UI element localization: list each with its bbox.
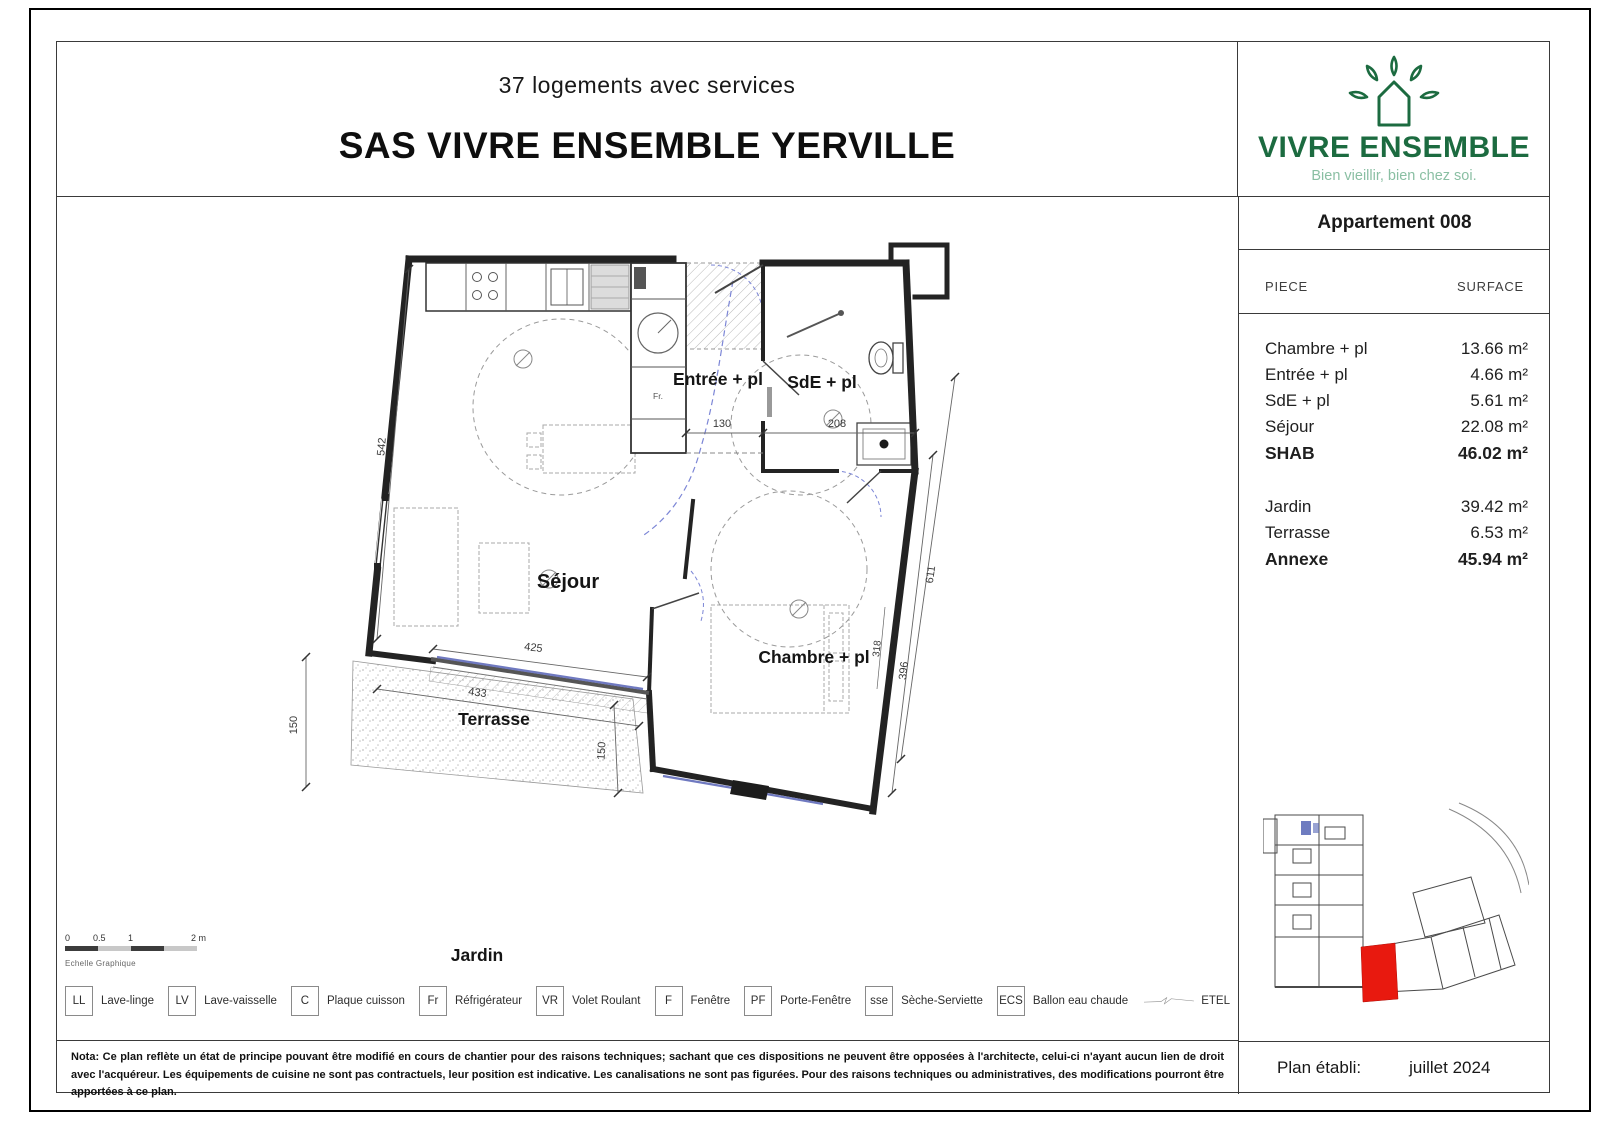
- room-label-chambre: Chambre + pl: [758, 647, 869, 667]
- legend-box-pf: PF: [744, 986, 772, 1016]
- room-label-sde: SdE + pl: [787, 372, 857, 392]
- logo: VIVRE ENSEMBLE Bien vieillir, bien chez …: [1238, 42, 1550, 197]
- table-row: Chambre + pl13.66 m²: [1265, 336, 1528, 362]
- toilet-icon: [869, 342, 893, 374]
- scale-tick-1: 1: [128, 933, 133, 943]
- project-title: SAS VIVRE ENSEMBLE YERVILLE: [339, 125, 956, 167]
- legend-box-ecs: ECS: [997, 986, 1025, 1016]
- room-label-entree: Entrée + pl: [673, 369, 763, 389]
- table-row: Séjour22.08 m²: [1265, 414, 1528, 440]
- dim-425: 425: [524, 641, 544, 655]
- room-label-jardin: Jardin: [451, 945, 504, 965]
- apartment-panel: Appartement 008 PIECE SURFACE Chambre + …: [1238, 197, 1550, 1094]
- surface-table: Chambre + pl13.66 m² Entrée + pl4.66 m² …: [1239, 314, 1550, 572]
- table-row-annexe: Annexe45.94 m²: [1265, 546, 1528, 572]
- plan-established-label: Plan établi:: [1277, 1058, 1361, 1078]
- apartment-title: Appartement 008: [1239, 197, 1550, 250]
- dim-150-right: 150: [596, 741, 609, 760]
- closet-column: [631, 263, 686, 453]
- nota-text: Nota: Ce plan reflète un état de princip…: [57, 1040, 1238, 1105]
- dim-433: 433: [467, 686, 487, 700]
- scale-caption: Echelle Graphique: [65, 959, 136, 968]
- table-row: Entrée + pl4.66 m²: [1265, 362, 1528, 388]
- etel-symbol-icon: [1144, 992, 1195, 1010]
- dim-130: 130: [713, 418, 731, 430]
- plan-established-date: juillet 2024: [1409, 1058, 1490, 1078]
- drawing-area: 542 130 208 425 433 150 150 611 396 318 …: [57, 197, 1238, 1094]
- legend: LL Lave-linge LV Lave-vaisselle C Plaque…: [65, 983, 1230, 1019]
- dim-208: 208: [828, 418, 846, 430]
- room-label-terrasse: Terrasse: [458, 709, 530, 729]
- legend-box-lv: LV: [168, 986, 196, 1016]
- project-subtitle: 37 logements avec services: [499, 72, 796, 99]
- brand-name: VIVRE ENSEMBLE: [1258, 131, 1530, 165]
- legend-box-vr: VR: [536, 986, 564, 1016]
- scale-tick-2: 2 m: [191, 933, 206, 943]
- shower-rail: [787, 313, 841, 337]
- sheet-frame: 37 logements avec services SAS VIVRE ENS…: [56, 41, 1550, 1093]
- table-spacer: [1265, 466, 1528, 494]
- table-row: Jardin39.42 m²: [1265, 494, 1528, 520]
- col-surface: SURFACE: [1457, 279, 1524, 294]
- scale-tick-0: 0: [65, 933, 70, 943]
- legend-box-c: C: [291, 986, 319, 1016]
- plan-date-row: Plan établi: juillet 2024: [1239, 1041, 1550, 1094]
- scale-bar: 0 0.5 1 2 m Echelle Graphique: [65, 933, 275, 981]
- kitchen-counter: [426, 263, 631, 311]
- legend-etel-label: ETEL: [1201, 995, 1230, 1007]
- towel-radiator: [767, 387, 772, 417]
- legend-box-f: F: [655, 986, 683, 1016]
- key-plan-map: [1263, 797, 1529, 1012]
- sink-drain: [880, 440, 889, 449]
- dim-150-left: 150: [288, 716, 300, 734]
- table-row: SdE + pl5.61 m²: [1265, 388, 1528, 414]
- dim-611: 611: [924, 565, 938, 584]
- table-row-shab: SHAB46.02 m²: [1265, 440, 1528, 466]
- house-leaves-logo-icon: [1331, 55, 1457, 129]
- surface-table-header: PIECE SURFACE: [1239, 250, 1550, 314]
- highlighted-unit: [1361, 943, 1398, 1002]
- col-piece: PIECE: [1265, 279, 1308, 294]
- table-row: Terrasse6.53 m²: [1265, 520, 1528, 546]
- room-label-sejour: Séjour: [537, 571, 599, 593]
- dim-542: 542: [375, 437, 389, 456]
- toilet-tank: [893, 343, 903, 373]
- furniture: [394, 425, 849, 713]
- dim-396: 396: [897, 661, 911, 681]
- legend-box-fr: Fr: [419, 986, 447, 1016]
- header: 37 logements avec services SAS VIVRE ENS…: [57, 42, 1238, 197]
- floor-plan: 542 130 208 425 433 150 150 611 396 318 …: [281, 237, 1061, 977]
- scale-tick-05: 0.5: [93, 933, 106, 943]
- legend-box-ll: LL: [65, 986, 93, 1016]
- fridge-label: Fr.: [653, 391, 663, 401]
- legend-box-sse: sse: [865, 986, 893, 1016]
- dim-318: 318: [871, 639, 884, 657]
- brand-tagline: Bien vieillir, bien chez soi.: [1311, 168, 1476, 184]
- plan-sheet: 37 logements avec services SAS VIVRE ENS…: [0, 0, 1600, 1123]
- scale-bar-segments: [65, 946, 197, 951]
